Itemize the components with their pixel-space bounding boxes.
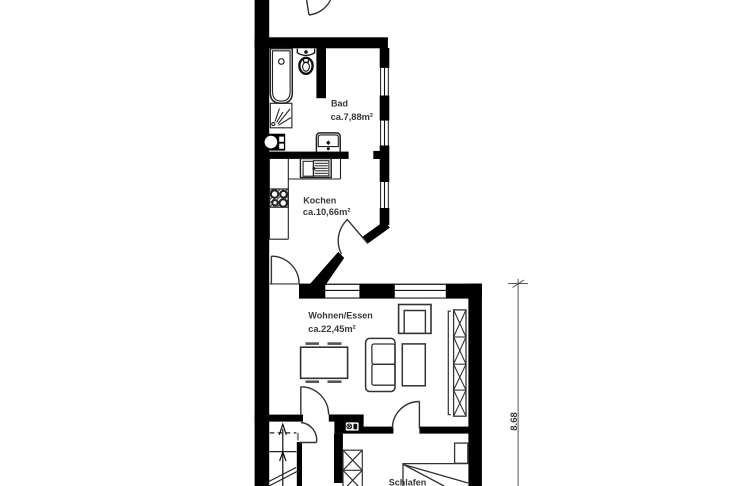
svg-text:Wohnen/Essen: Wohnen/Essen [308,311,372,321]
svg-text:ca.22,45m²: ca.22,45m² [308,324,356,334]
svg-text:Kochen: Kochen [303,196,336,206]
svg-text:Bad: Bad [331,99,348,109]
svg-text:ca.10,66m²: ca.10,66m² [303,207,351,217]
svg-text:Schlafen: Schlafen [389,477,427,486]
svg-text:8.68: 8.68 [509,411,520,430]
svg-text:ca.7,88m²: ca.7,88m² [331,112,373,122]
